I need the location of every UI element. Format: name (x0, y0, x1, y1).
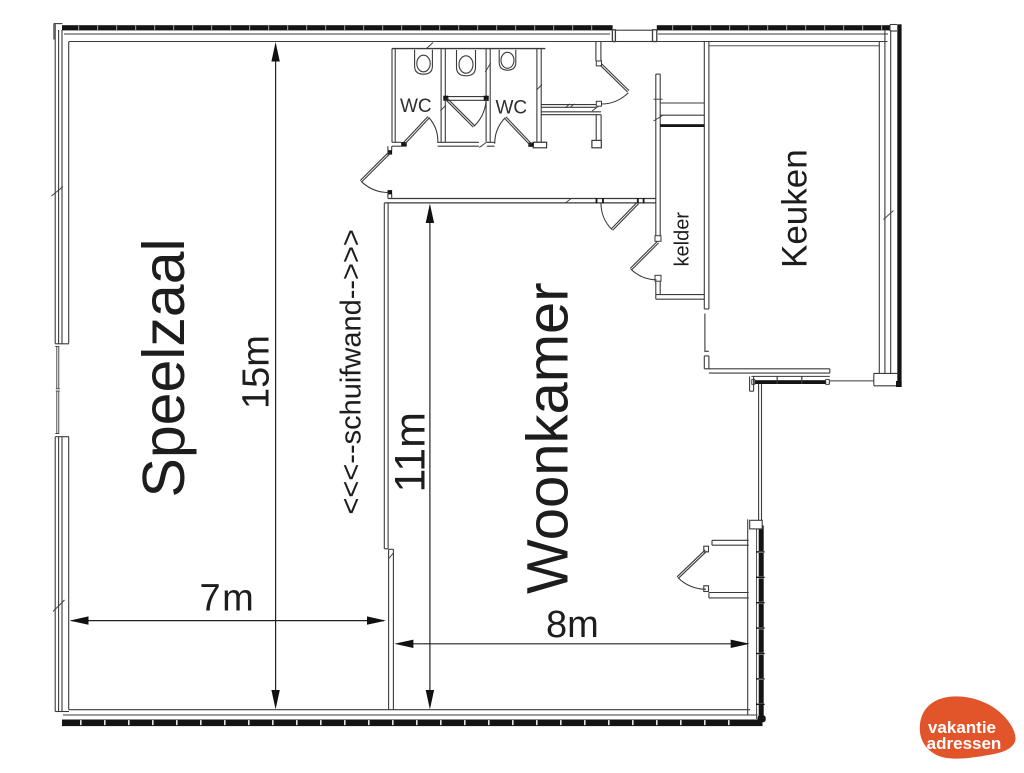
svg-text:Keuken: Keuken (776, 149, 815, 268)
svg-text:Woonkamer: Woonkamer (516, 282, 581, 594)
svg-text:Speelzaal: Speelzaal (131, 238, 197, 497)
svg-text:<<<--schuifwand-->>>: <<<--schuifwand-->>> (336, 229, 368, 514)
svg-text:WC: WC (496, 98, 528, 119)
svg-text:WC: WC (400, 96, 432, 117)
svg-text:7m: 7m (200, 578, 256, 620)
svg-text:8m: 8m (546, 604, 599, 646)
svg-text:kelder: kelder (671, 212, 693, 267)
svg-text:11m: 11m (387, 412, 435, 492)
svg-text:adressen: adressen (927, 734, 1002, 753)
svg-text:15m: 15m (236, 335, 278, 409)
